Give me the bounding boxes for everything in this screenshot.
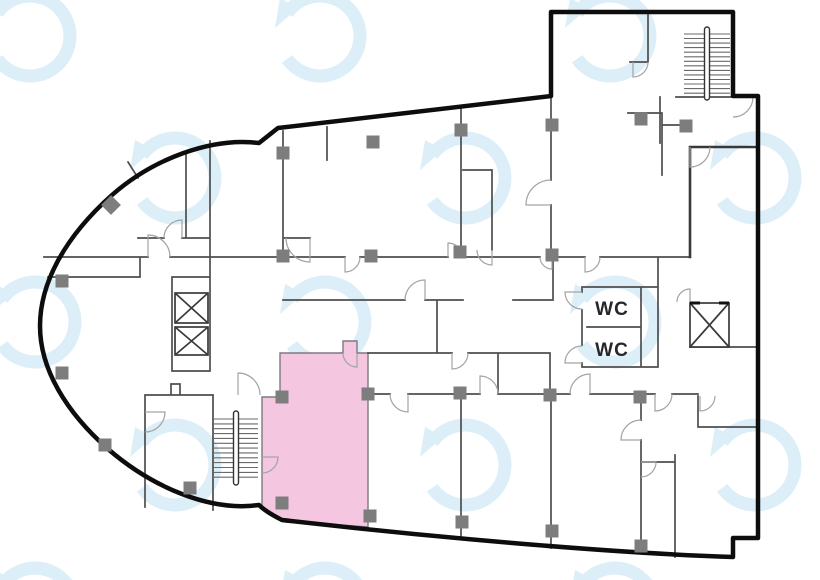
circular-arrow-watermark-icon [710, 138, 795, 218]
device-marker-square[interactable] [99, 439, 112, 452]
interior-walls [44, 12, 758, 557]
circular-arrow-watermark-icon [280, 568, 365, 580]
door-swing-arc [655, 394, 672, 411]
device-marker-square[interactable] [546, 249, 559, 262]
circular-arrow-watermark-icon [0, 0, 70, 76]
circular-arrow-watermark-icon [0, 282, 75, 362]
door-swing-arc [700, 396, 715, 411]
wc-labels: WCWC [595, 299, 629, 361]
circular-arrow-watermark-icon [570, 568, 655, 580]
device-marker-diamond[interactable] [101, 195, 121, 215]
circular-arrow-watermark-icon [130, 425, 215, 505]
device-marker-square[interactable] [276, 497, 289, 510]
circular-arrow-watermark-icon [710, 425, 795, 505]
wc-label: WC [595, 299, 629, 320]
door-swing-arc [570, 374, 590, 394]
door-swing-arc [345, 257, 360, 272]
wc-label: WC [595, 340, 629, 361]
device-marker-square[interactable] [276, 391, 289, 404]
device-marker-square[interactable] [56, 275, 69, 288]
circular-arrow-watermark-icon [130, 138, 215, 218]
door-swing-arc [733, 97, 753, 117]
device-marker-square[interactable] [454, 387, 467, 400]
building-outline [40, 12, 758, 557]
stair-stringer [234, 411, 239, 485]
device-marker-square[interactable] [362, 388, 375, 401]
device-marker-square[interactable] [544, 389, 557, 402]
device-marker-square[interactable] [365, 250, 378, 263]
device-marker-square[interactable] [456, 516, 469, 529]
door-swing-arc [452, 353, 468, 369]
elevator-right [690, 303, 729, 347]
door-swing-arc [690, 147, 710, 167]
floor-plan: WCWC [0, 0, 820, 580]
device-marker-square[interactable] [634, 391, 647, 404]
device-marker-square[interactable] [277, 147, 290, 160]
device-marker-square[interactable] [680, 120, 693, 133]
door-swing-arc [405, 280, 425, 300]
device-marker-square[interactable] [546, 119, 559, 132]
door-swing-arc [526, 180, 551, 205]
circular-arrow-watermark-icon [420, 425, 505, 505]
door-swing-arc [390, 394, 408, 412]
circular-arrow-watermark-icon [0, 568, 75, 580]
stair-stringer [705, 27, 710, 100]
device-marker-square[interactable] [184, 482, 197, 495]
door-swing-arc [480, 376, 498, 394]
elevator-shaft-left [175, 293, 208, 355]
marker-layer [56, 113, 693, 553]
device-marker-square[interactable] [454, 246, 467, 259]
door-swing-arc [621, 420, 641, 440]
device-marker-square[interactable] [56, 367, 69, 380]
device-marker-square[interactable] [635, 113, 648, 126]
door-swing-arc [677, 289, 690, 302]
device-marker-square[interactable] [546, 525, 559, 538]
device-marker-square[interactable] [277, 250, 290, 263]
stairs-upper-right [684, 27, 730, 100]
door-swing-arc [585, 257, 600, 272]
door-swing-arc [641, 462, 656, 477]
door-swing-arc [238, 373, 260, 395]
device-marker-square[interactable] [455, 124, 468, 137]
floor-plan-page: WCWC [0, 0, 820, 580]
device-marker-square[interactable] [364, 510, 377, 523]
circular-arrow-watermark-icon [275, 0, 360, 76]
device-marker-square[interactable] [367, 136, 380, 149]
device-marker-square[interactable] [635, 540, 648, 553]
door-swing-arc [286, 238, 310, 262]
